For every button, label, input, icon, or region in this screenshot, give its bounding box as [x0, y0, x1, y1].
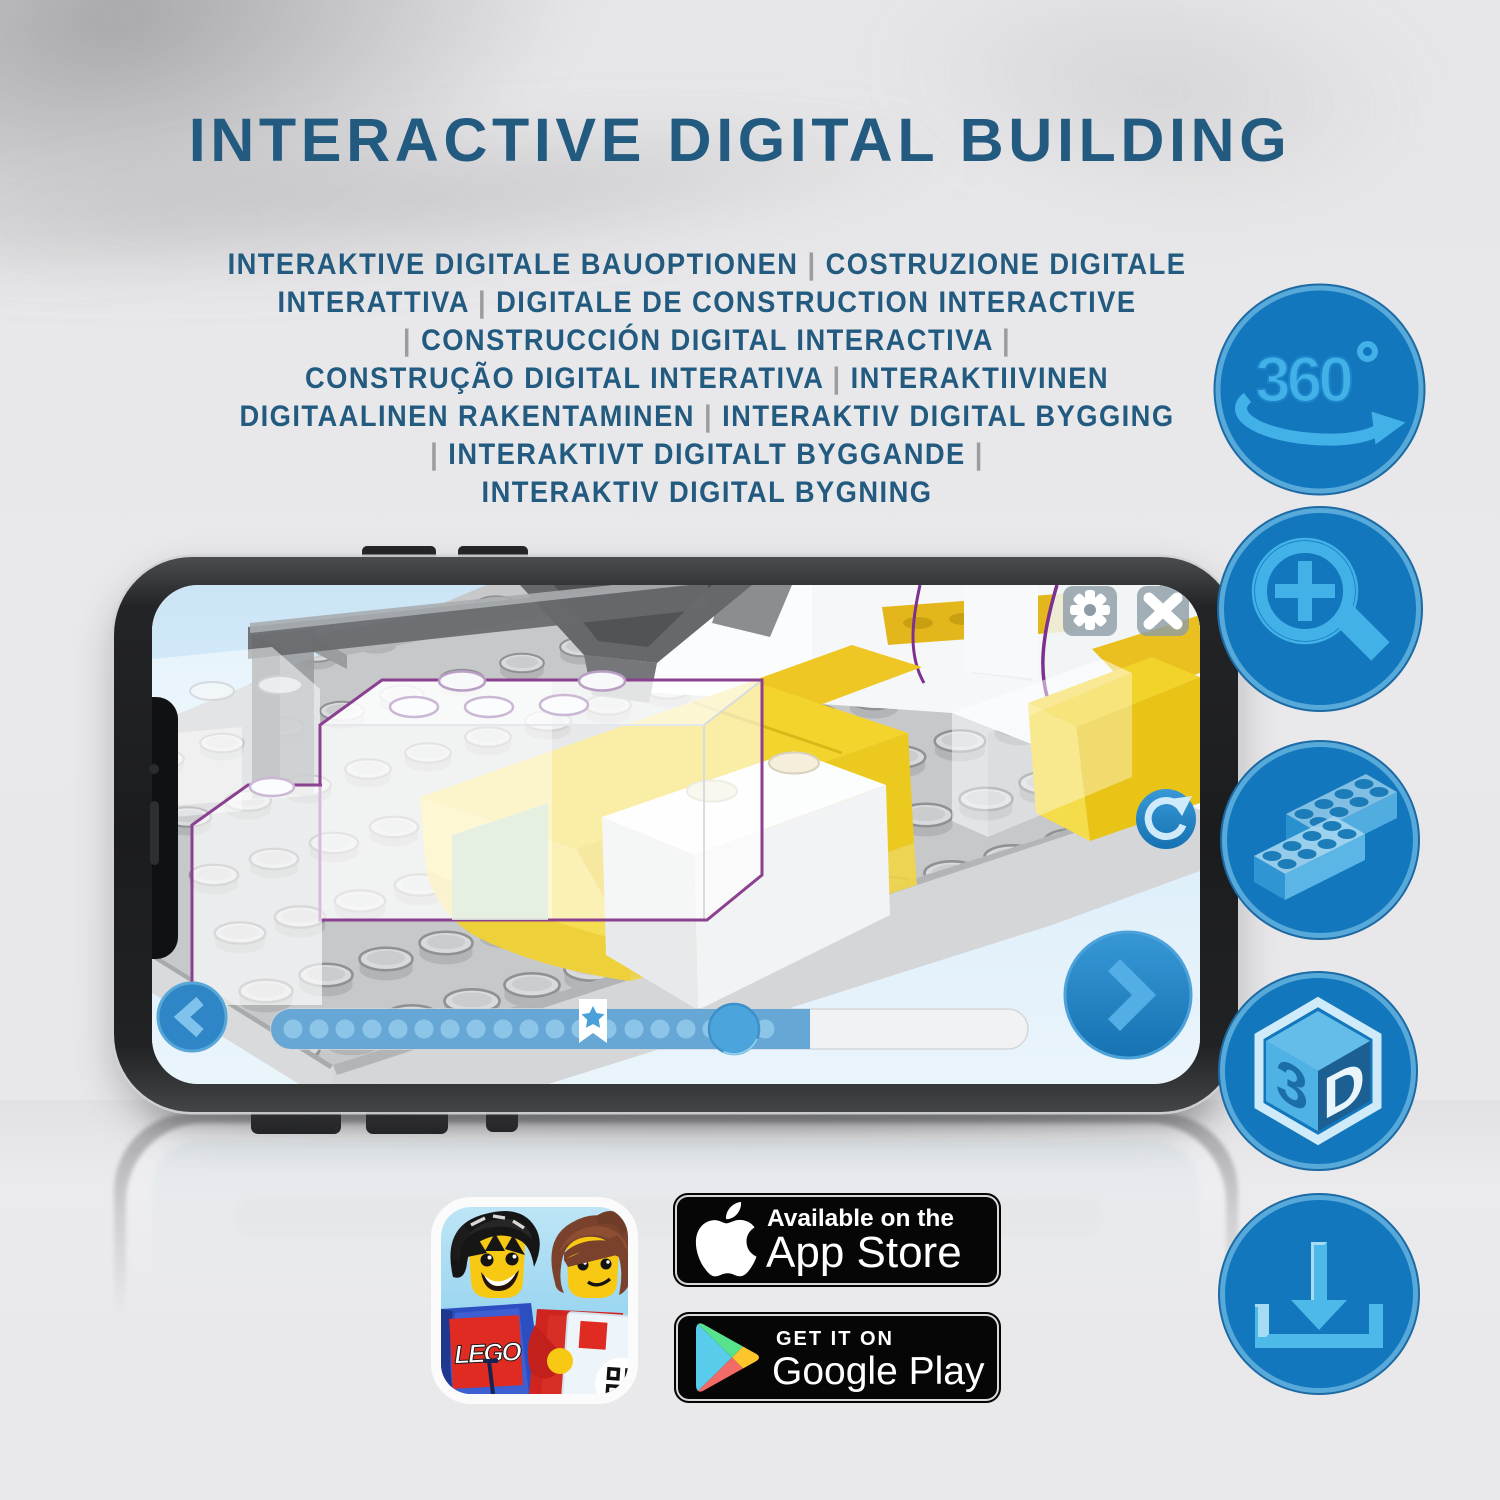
svg-text:App Store: App Store [766, 1228, 962, 1277]
svg-text:GET IT ON: GET IT ON [776, 1328, 894, 1350]
svg-text:360: 360 [1255, 344, 1351, 416]
svg-text:Google Play: Google Play [772, 1350, 985, 1393]
